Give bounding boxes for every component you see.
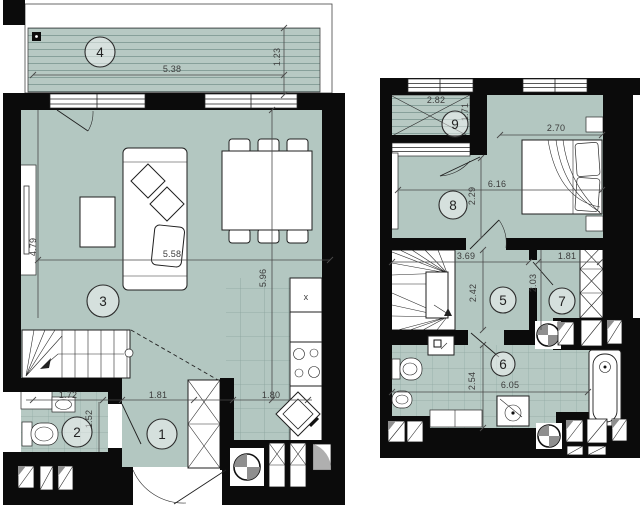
window-bedroom xyxy=(523,79,587,92)
ventilation-shaft-floor1 xyxy=(230,448,264,486)
room-badge-4: 4 xyxy=(85,37,115,67)
chair xyxy=(287,229,308,243)
room-badge-8: 8 xyxy=(439,191,467,219)
dining-set xyxy=(222,139,312,243)
chair xyxy=(229,229,250,243)
floorplan-canvas: x xyxy=(0,0,640,505)
room-badge-5: 5 xyxy=(490,287,516,313)
dim-hall-width: 3.69 xyxy=(457,251,475,261)
dining-table xyxy=(222,151,312,230)
svg-text:7: 7 xyxy=(558,294,566,309)
svg-text:9: 9 xyxy=(451,117,459,132)
balcony-4 xyxy=(25,4,332,93)
svg-text:4: 4 xyxy=(96,45,104,60)
toilet-tank xyxy=(22,422,32,446)
window-living-left xyxy=(50,94,145,108)
dim-hall-depth: 2.42 xyxy=(468,284,478,302)
entry-door xyxy=(133,470,226,504)
svg-text:8: 8 xyxy=(449,198,457,213)
shaft-hatch-floor1 xyxy=(18,466,73,490)
nightstand xyxy=(586,216,603,231)
window-balcony9 xyxy=(408,79,473,92)
sofa xyxy=(123,148,187,290)
svg-text:1: 1 xyxy=(158,427,166,442)
dim-bath-depth: 2.54 xyxy=(467,372,477,390)
room-badge-7: 7 xyxy=(549,288,575,314)
room-badge-3: 3 xyxy=(87,285,119,317)
dim-kitchen-depth: 5.96 xyxy=(258,269,268,287)
dim-bedroom-right-width: 2.70 xyxy=(547,123,565,133)
coffee-table xyxy=(80,197,115,247)
svg-text:3: 3 xyxy=(99,294,107,309)
dim-bedroom-total-width: 6.16 xyxy=(488,179,506,189)
cushion xyxy=(151,225,185,268)
vanity xyxy=(430,410,482,427)
wardrobe-hall xyxy=(188,380,220,468)
ventilation-shaft-lower xyxy=(536,423,562,449)
chair xyxy=(258,229,279,243)
cabinet-x-label: x xyxy=(304,292,309,302)
wardrobe-column xyxy=(580,245,603,318)
bathtub xyxy=(589,350,621,426)
dim-balcony-width: 5.38 xyxy=(163,64,181,74)
room-badge-9: 9 xyxy=(442,111,468,137)
dim-kitchen-width: 1.80 xyxy=(262,390,280,400)
dim-wardrobe-depth: 2.03 xyxy=(528,274,538,292)
ventilation-shaft-upper xyxy=(535,321,561,349)
dim-living-depth: 4.79 xyxy=(28,238,38,256)
dim-bath-width: 6.05 xyxy=(501,380,519,390)
dim-living-width: 5.58 xyxy=(163,249,181,259)
dim-wardrobe-width: 1.81 xyxy=(558,251,576,261)
dim-balcony-depth: 1.23 xyxy=(272,48,282,66)
washing-machine xyxy=(428,336,454,355)
second-floor-plan: 2.82 1.71 2.70 6.16 2.29 3.69 1.81 2.42 … xyxy=(380,78,640,458)
toilet-tank xyxy=(392,359,400,379)
stairs-first-floor xyxy=(22,330,133,378)
dim-hall-width: 1.81 xyxy=(149,390,167,400)
wc-counter xyxy=(21,390,52,409)
stove xyxy=(290,342,322,386)
svg-text:6: 6 xyxy=(499,357,507,372)
floorplan-drawing: x xyxy=(0,0,640,505)
first-floor-plan: x xyxy=(3,0,345,505)
dim-balcony9-width: 2.82 xyxy=(427,95,445,105)
room-badge-2: 2 xyxy=(62,417,92,447)
room-badge-1: 1 xyxy=(147,419,177,449)
svg-text:2: 2 xyxy=(73,425,81,440)
pillow xyxy=(575,142,600,177)
radiator xyxy=(20,165,36,275)
bidet xyxy=(392,391,412,408)
dim-wc-width: 1.72 xyxy=(59,390,77,400)
dim-bedroom-left-depth: 2.29 xyxy=(467,187,477,205)
room-badge-6: 6 xyxy=(491,352,515,376)
nightstand xyxy=(586,117,603,132)
svg-text:5: 5 xyxy=(499,293,507,308)
